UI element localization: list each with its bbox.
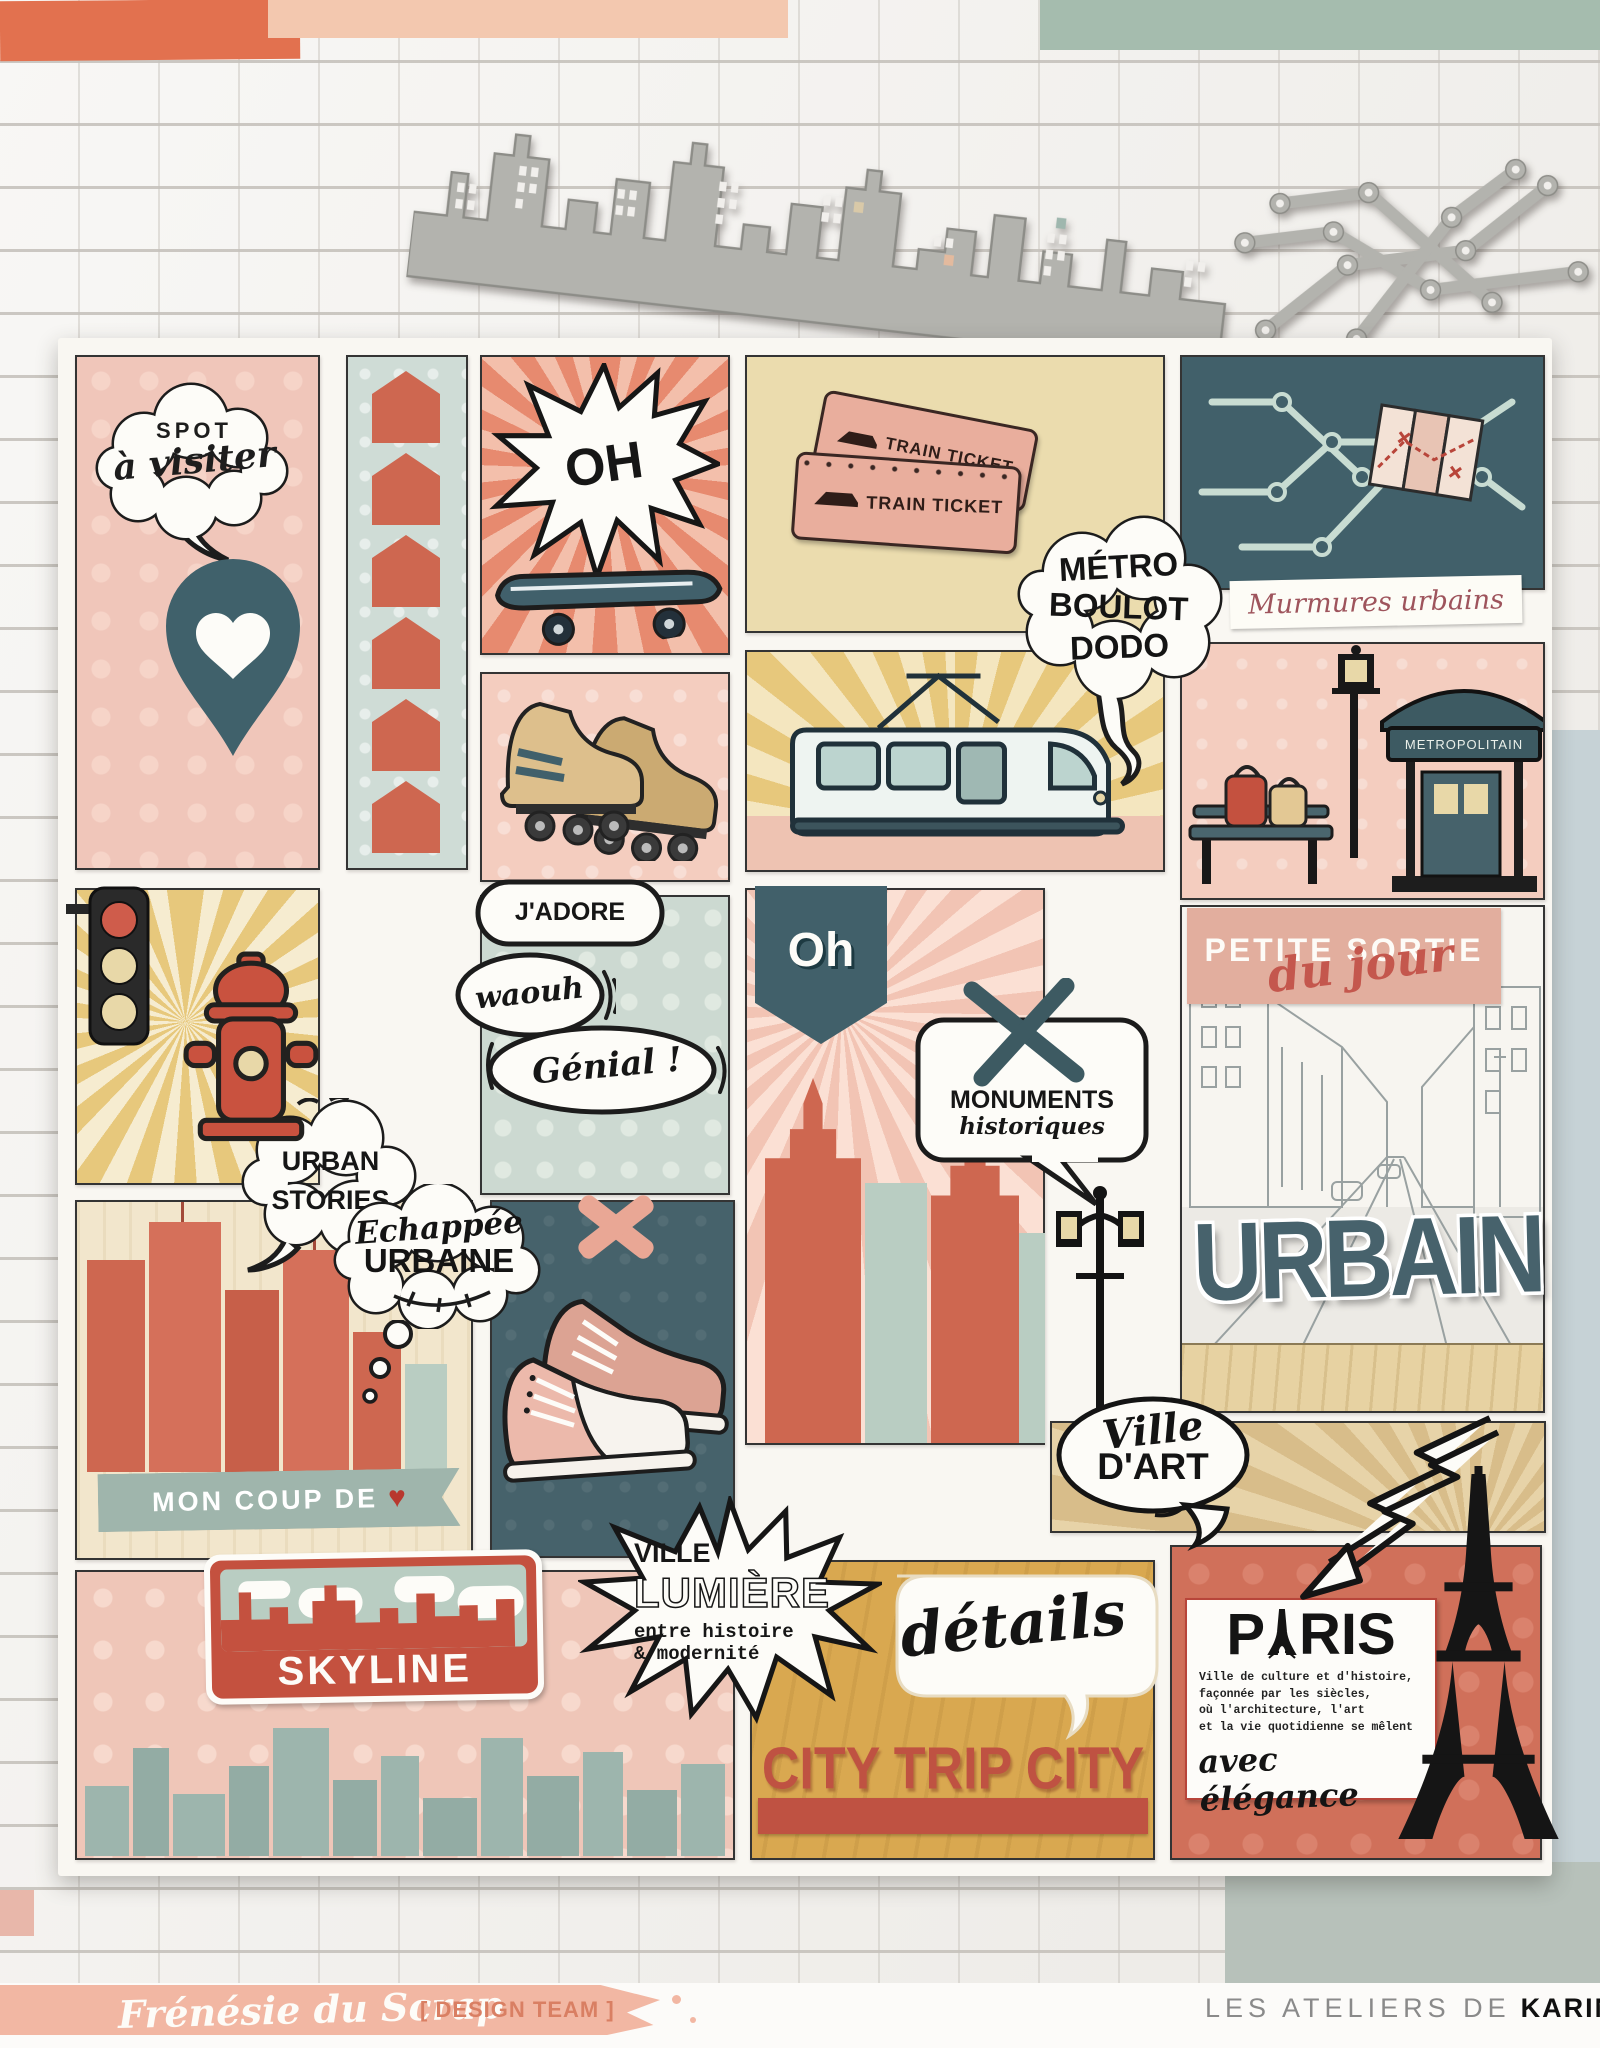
teal-building [85, 1786, 129, 1856]
paper-peach-top [268, 0, 788, 38]
photo-scene: METROPOLITAIN [0, 0, 1600, 2048]
teal-building [681, 1764, 725, 1856]
teal-building [423, 1798, 477, 1856]
house-tag [372, 699, 440, 771]
traffic-light-icon [66, 884, 158, 1056]
ville-dart-bubble: Ville D'ART [1053, 1393, 1263, 1553]
skyscraper [87, 1260, 145, 1472]
heart-icon: ♥ [388, 1481, 406, 1515]
ville-lumiere-l3: entre histoire [634, 1621, 834, 1643]
antenna [181, 1202, 184, 1222]
ticket-label: TRAIN TICKET [866, 492, 1004, 518]
map-pin-icon [158, 550, 308, 760]
ville-lumiere-l4: & modernité [634, 1643, 834, 1665]
train-icon [812, 485, 861, 510]
ville-lumiere-l2: LUMIÈRE [634, 1569, 834, 1617]
teal-building [527, 1776, 579, 1856]
teal-building [273, 1728, 329, 1856]
city-trip-base-bar [758, 1798, 1148, 1834]
spot-bubble: SPOT à visiter [86, 376, 304, 566]
lightning-arrow-icon [1288, 1408, 1508, 1616]
thought-dots [358, 1320, 424, 1412]
building-mint [865, 1183, 927, 1443]
pink-x-mark [572, 1181, 658, 1273]
murmures-text: Murmures urbains [1248, 584, 1504, 620]
house-tag [372, 371, 440, 443]
metro-line2: BOULOT [1049, 586, 1190, 629]
panel-street-furniture: METROPOLITAIN [1180, 642, 1545, 900]
urbain-text: URBAIN [1192, 1191, 1545, 1327]
footer-swash-dot [672, 1995, 681, 2004]
train-icon [834, 424, 881, 452]
metro-map-graphic [1182, 357, 1543, 588]
spot-label-2: à visiter [111, 433, 277, 489]
teal-building [133, 1748, 169, 1856]
jadore-text: J'ADORE [515, 898, 625, 927]
skyscraper [225, 1290, 279, 1472]
skyline-sign: SKYLINE [204, 1549, 545, 1705]
eiffel-letter-icon [1267, 1608, 1297, 1664]
paper-sage-bottom-right [1225, 1862, 1600, 1990]
urbain-title: URBAIN [1182, 1204, 1554, 1314]
ville-lumiere-l1: VILLE [634, 1538, 834, 1569]
footer-studio-bold: KARINE [1521, 1993, 1600, 2024]
details-bubble: détails [863, 1568, 1165, 1748]
teal-building [481, 1738, 523, 1856]
skyline-sign-text: SKYLINE [277, 1646, 472, 1694]
ville-lumiere-burst: VILLE LUMIÈRE entre histoire & modernité [578, 1496, 882, 1726]
sneakers-icon [482, 1271, 757, 1519]
teal-building [381, 1756, 419, 1856]
monuments-l1: MONUMENTS [950, 1086, 1114, 1115]
house-tag [372, 453, 440, 525]
metro-line1: MÉTRO [1058, 545, 1179, 589]
teal-skyline-group [79, 1722, 731, 1856]
train-ticket-front: TRAIN TICKET [791, 451, 1023, 555]
skyscraper [149, 1222, 221, 1472]
teal-building [229, 1766, 269, 1856]
teal-building [333, 1780, 377, 1856]
oh-burst-label: OH [561, 430, 647, 500]
paper-pink-bottom-left [0, 1890, 34, 1936]
svg-text:METROPOLITAIN: METROPOLITAIN [1405, 737, 1523, 752]
teal-building [173, 1794, 225, 1856]
paper-coral-top-left [0, 0, 300, 61]
details-text: détails [897, 1578, 1129, 1671]
footer-swash-dot [690, 2017, 696, 2023]
building-mint-2 [1019, 1233, 1045, 1443]
house-tag [372, 535, 440, 607]
house-tag [372, 617, 440, 689]
mon-coup-banner: MON COUP DE ♥ [98, 1468, 461, 1532]
murmures-label: Murmures urbains [1230, 575, 1523, 629]
building-red-tall [765, 1078, 861, 1443]
waouh-text: waouh [473, 970, 585, 1016]
footer-studio: LES ATELIERS DE KARINE [1205, 1993, 1600, 2024]
skyline-sign-sky [220, 1564, 527, 1651]
footer-studio-light: LES ATELIERS DE [1205, 1993, 1511, 2024]
teal-building [583, 1752, 623, 1856]
oh-pennant-text: Oh [788, 923, 855, 978]
monuments-l2: historiques [959, 1113, 1105, 1140]
mon-coup-label: MON COUP DE [152, 1483, 379, 1518]
genial-text: Génial ! [531, 1040, 684, 1093]
paris-title-p: P [1226, 1606, 1265, 1664]
footer-design-team: [ DESIGN TEAM ] [420, 1997, 615, 2023]
genial-bubble: Génial ! [482, 1022, 728, 1118]
bench-lamp-kiosk-graphic: METROPOLITAIN [1182, 644, 1543, 898]
fire-hydrant-icon [180, 950, 322, 1168]
petite-sortie-label: PETITE SORTIE du jour [1187, 908, 1501, 1004]
panel-house-garland [346, 355, 468, 870]
rollerblades-icon [486, 686, 736, 861]
jadore-bubble: J'ADORE [474, 878, 666, 950]
panel-metro-map [1180, 355, 1545, 590]
paper-sage-top-right [1040, 0, 1600, 50]
scrapbook-page: METROPOLITAIN [58, 338, 1552, 1876]
teal-building [627, 1790, 677, 1856]
tram-icon [786, 660, 1131, 865]
house-tag [372, 781, 440, 853]
footer: Frénésie du Scrap [ DESIGN TEAM ] LES AT… [0, 1983, 1600, 2048]
